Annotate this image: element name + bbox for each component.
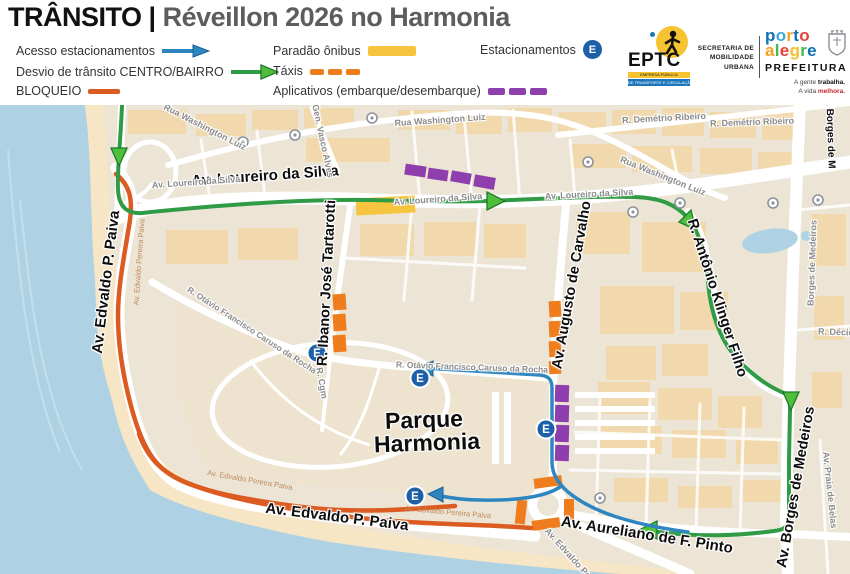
eptc-wordmark: EPTC — [628, 50, 681, 72]
parking-badge-icon: E — [583, 40, 602, 59]
logo-divider — [759, 36, 760, 78]
svg-text:E: E — [542, 424, 550, 436]
traffic-map: E E E E Av. Loureiro da Silva Av. Edvald… — [0, 105, 850, 574]
title-separator: | — [149, 2, 156, 32]
legend-bloqueio-label: BLOQUEIO — [16, 84, 81, 98]
green-arrow-icon — [231, 64, 279, 80]
eptc-sub1: EMPRESA PÚBLICA — [628, 72, 690, 78]
legend-item-estacionamentos: Estacionamentos E — [480, 40, 602, 59]
park-label-line2: Harmonia — [374, 428, 481, 459]
legend-item-paradao: Paradão ônibus — [273, 44, 416, 58]
parking-badge: E — [411, 369, 430, 388]
infographic: TRÂNSITO | Réveillon 2026 no Harmonia Ac… — [0, 0, 850, 574]
parking-badge: E — [537, 420, 556, 439]
city-crest-icon — [827, 30, 847, 61]
secretaria-label: SECRETARIA DE MOBILIDADE URBANA — [688, 44, 754, 72]
legend-item-acesso: Acesso estacionamentos — [16, 44, 210, 58]
title-main: TRÂNSITO — [8, 2, 142, 32]
park-area — [174, 300, 548, 500]
legend-aplicativos-label: Aplicativos (embarque/desembarque) — [273, 84, 481, 98]
eptc-sub2: DE TRANSPORTE E CIRCULAÇÃO — [628, 79, 690, 86]
taxi-dashes-icon — [310, 64, 364, 78]
eptc-dot-icon — [650, 32, 655, 37]
street-label-borges-top: Av. Borges de M — [823, 105, 837, 169]
legend-desvio-label: Desvio de trânsito CENTRO/BAIRRO — [16, 65, 224, 79]
street-label-decio: R. Décio — [818, 326, 850, 337]
porto-alegre-logo: porto alegre PREFEITURA A gente trabalha… — [765, 28, 845, 97]
legend-acesso-label: Acesso estacionamentos — [16, 44, 155, 58]
app-dashes-icon — [488, 84, 551, 98]
blue-arrow-icon — [162, 44, 210, 58]
tagline: A gente trabalha. A vida melhora. — [765, 78, 845, 98]
title-subtitle: Réveillon 2026 no Harmonia — [163, 2, 510, 32]
bloqueio-line-icon — [88, 89, 120, 94]
page-title: TRÂNSITO | Réveillon 2026 no Harmonia — [8, 2, 510, 33]
legend-item-aplicativos: Aplicativos (embarque/desembarque) — [273, 84, 551, 98]
prefeitura-label: PREFEITURA — [765, 62, 845, 74]
legend-estacionamentos-label: Estacionamentos — [480, 43, 576, 57]
parking-badge: E — [406, 487, 425, 506]
eptc-logo: EPTC EMPRESA PÚBLICA DE TRANSPORTE E CIR… — [628, 26, 692, 92]
legend-item-desvio: Desvio de trânsito CENTRO/BAIRRO — [16, 64, 279, 80]
legend-item-taxis: Táxis — [273, 64, 364, 78]
bus-zone-icon — [368, 46, 416, 56]
svg-text:E: E — [416, 373, 424, 385]
svg-text:E: E — [411, 491, 419, 503]
legend-taxis-label: Táxis — [273, 64, 303, 78]
legend-item-bloqueio: BLOQUEIO — [16, 84, 120, 98]
legend-paradao-label: Paradão ônibus — [273, 44, 361, 58]
header: TRÂNSITO | Réveillon 2026 no Harmonia Ac… — [0, 0, 850, 105]
